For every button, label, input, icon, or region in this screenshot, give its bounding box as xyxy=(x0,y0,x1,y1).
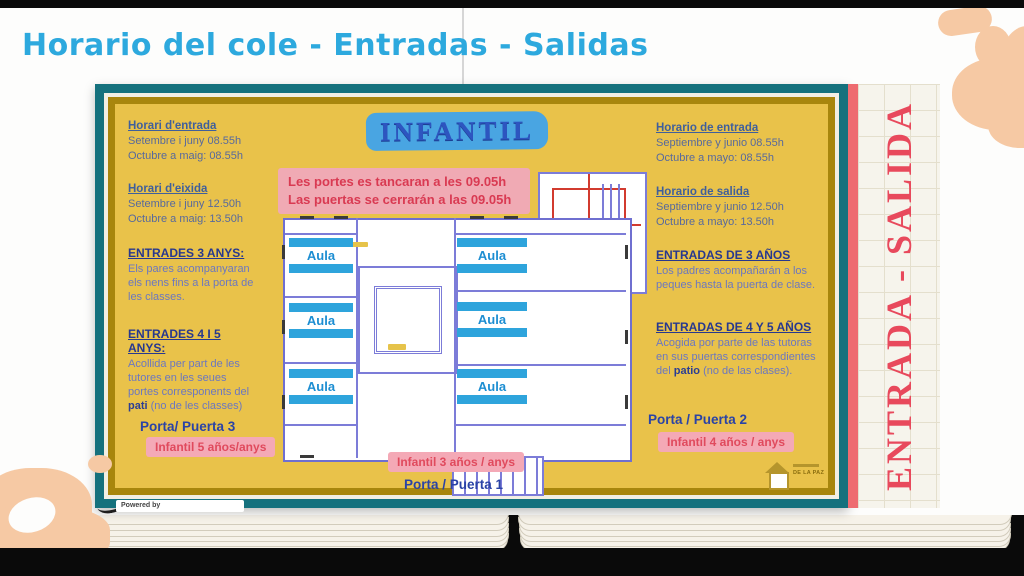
room-label: Aula xyxy=(457,247,527,264)
right-age45-text: Acogida por parte de las tutoras en sus … xyxy=(656,336,826,378)
plan-wall xyxy=(285,424,356,426)
classroom: Aula xyxy=(289,303,353,338)
powered-by-badge[interactable]: Powered by xyxy=(116,500,244,512)
right-entry-block: Horario de entrada Septiembre y junio 08… xyxy=(656,122,836,165)
room-window-bar xyxy=(289,264,353,273)
plan-wall xyxy=(456,290,626,292)
plan-door-tick xyxy=(300,455,314,458)
classroom: Aula xyxy=(457,238,527,273)
plan-wall xyxy=(285,296,356,298)
plan-door-tick xyxy=(625,330,628,344)
right-age3-block: ENTRADAS DE 3 AÑOS Los padres acompañará… xyxy=(656,248,826,292)
plan-door-tick xyxy=(300,216,314,219)
house-icon xyxy=(769,472,789,490)
room-window-bar xyxy=(457,369,527,378)
right-entry-line1: Septiembre y junio 08.55h xyxy=(656,136,836,151)
doors-close-notice: Les portes es tancaran a les 09.05h Las … xyxy=(278,168,530,214)
classroom: Aula xyxy=(457,369,527,404)
plan-yellow-mark xyxy=(352,242,368,247)
right-age3-text: Los padres acompañarán a los peques hast… xyxy=(656,264,826,292)
plan-door-tick xyxy=(504,216,518,219)
plan-door-tick xyxy=(282,245,285,259)
school-logo: DE LA PAZ xyxy=(765,460,837,492)
room-label: Aula xyxy=(289,378,353,395)
right-exit-line1: Septiembre y junio 12.50h xyxy=(656,200,836,215)
door3-label: Porta/ Puerta 3 xyxy=(140,419,235,434)
plan-door-tick xyxy=(625,395,628,409)
left-entry-block: Horari d'entrada Setembre i juny 08.55h … xyxy=(128,120,258,163)
left-exit-line2: Octubre a maig: 13.50h xyxy=(128,212,258,227)
slide-title: Horario del cole - Entradas - Salidas xyxy=(22,28,648,63)
right-exit-line2: Octubre a mayo: 13.50h xyxy=(656,215,836,230)
right-age3-heading: ENTRADAS DE 3 AÑOS xyxy=(656,248,826,262)
logo-bar xyxy=(793,464,819,467)
room-window-bar xyxy=(457,238,527,247)
classroom: Aula xyxy=(289,238,353,273)
infantil-banner-text: INFANTIL xyxy=(380,115,534,148)
room-window-bar xyxy=(289,238,353,247)
right-exit-block: Horario de salida Septiembre y junio 12.… xyxy=(656,186,836,229)
left-exit-heading: Horari d'eixida xyxy=(128,183,258,195)
side-grid-panel: ENTRADA - SALIDA xyxy=(858,84,940,508)
door3-badge: Infantil 5 años/anys xyxy=(146,437,275,457)
left-age3-heading: ENTRADES 3 ANYS: xyxy=(128,246,256,260)
left-entry-heading: Horari d'entrada xyxy=(128,120,258,132)
room-window-bar xyxy=(457,395,527,404)
letterbox-bottom xyxy=(0,548,1024,576)
logo-caption: DE LA PAZ xyxy=(793,470,824,476)
right-exit-heading: Horario de salida xyxy=(656,186,836,198)
left-age3-text: Els pares acompanyaran els nens fins a l… xyxy=(128,262,256,304)
plan-wall xyxy=(285,233,356,235)
infantil-banner: INFANTIL xyxy=(366,111,548,151)
plan-door-tick xyxy=(282,320,285,334)
room-window-bar xyxy=(289,369,353,378)
slide-canvas: Horario del cole - Entradas - Salidas EN… xyxy=(0,0,1024,576)
side-red-strip xyxy=(848,84,858,508)
classroom: Aula xyxy=(289,369,353,404)
room-window-bar xyxy=(289,303,353,312)
door2-label: Porta / Puerta 2 xyxy=(648,412,747,427)
notice-line1: Les portes es tancaran a les 09.05h xyxy=(288,173,530,191)
left-entry-line1: Setembre i juny 08.55h xyxy=(128,134,258,149)
room-window-bar xyxy=(457,264,527,273)
left-exit-block: Horari d'eixida Setembre i juny 12.50h O… xyxy=(128,183,258,226)
right-age45-heading: ENTRADAS DE 4 Y 5 AÑOS xyxy=(656,320,826,334)
left-age45-block: ENTRADES 4 I 5 ANYS: Acollida per part d… xyxy=(128,327,256,413)
plan-door-tick xyxy=(625,245,628,259)
door1-badge: Infantil 3 años / anys xyxy=(388,452,524,472)
door1-label: Porta / Puerta 1 xyxy=(404,477,503,492)
room-label: Aula xyxy=(457,378,527,395)
room-window-bar xyxy=(289,395,353,404)
plan-door-tick xyxy=(470,216,484,219)
side-banner-text: ENTRADA - SALIDA xyxy=(869,84,929,508)
right-entry-line2: Octubre a mayo: 08.55h xyxy=(656,151,836,166)
right-entry-heading: Horario de entrada xyxy=(656,122,836,134)
plan-yellow-mark xyxy=(388,344,406,350)
left-entry-line2: Octubre a maig: 08.55h xyxy=(128,149,258,164)
plan-courtyard-inner xyxy=(374,286,442,354)
plan-door-tick xyxy=(282,395,285,409)
classroom: Aula xyxy=(457,302,527,337)
left-age45-text: Acollida per part de les tutores en les … xyxy=(128,357,256,413)
plan-wall xyxy=(456,233,626,235)
plan-wall xyxy=(285,362,356,364)
room-label: Aula xyxy=(289,247,353,264)
room-window-bar xyxy=(457,328,527,337)
room-label: Aula xyxy=(289,312,353,329)
notice-line2: Las puertas se cerrarán a las 09.05h xyxy=(288,191,530,209)
plan-door-tick xyxy=(334,216,348,219)
plan-wall xyxy=(456,424,626,426)
left-exit-line1: Setembre i juny 12.50h xyxy=(128,197,258,212)
plan-wall xyxy=(456,364,626,366)
room-window-bar xyxy=(457,302,527,311)
left-age45-heading: ENTRADES 4 I 5 ANYS: xyxy=(128,327,256,355)
letterbox-top xyxy=(0,0,1024,8)
left-age3-block: ENTRADES 3 ANYS: Els pares acompanyaran … xyxy=(128,246,256,304)
room-window-bar xyxy=(289,329,353,338)
room-label: Aula xyxy=(457,311,527,328)
blob-decoration xyxy=(88,455,112,473)
right-age45-block: ENTRADAS DE 4 Y 5 AÑOS Acogida por parte… xyxy=(656,320,826,378)
door2-badge: Infantil 4 años / anys xyxy=(658,432,794,452)
